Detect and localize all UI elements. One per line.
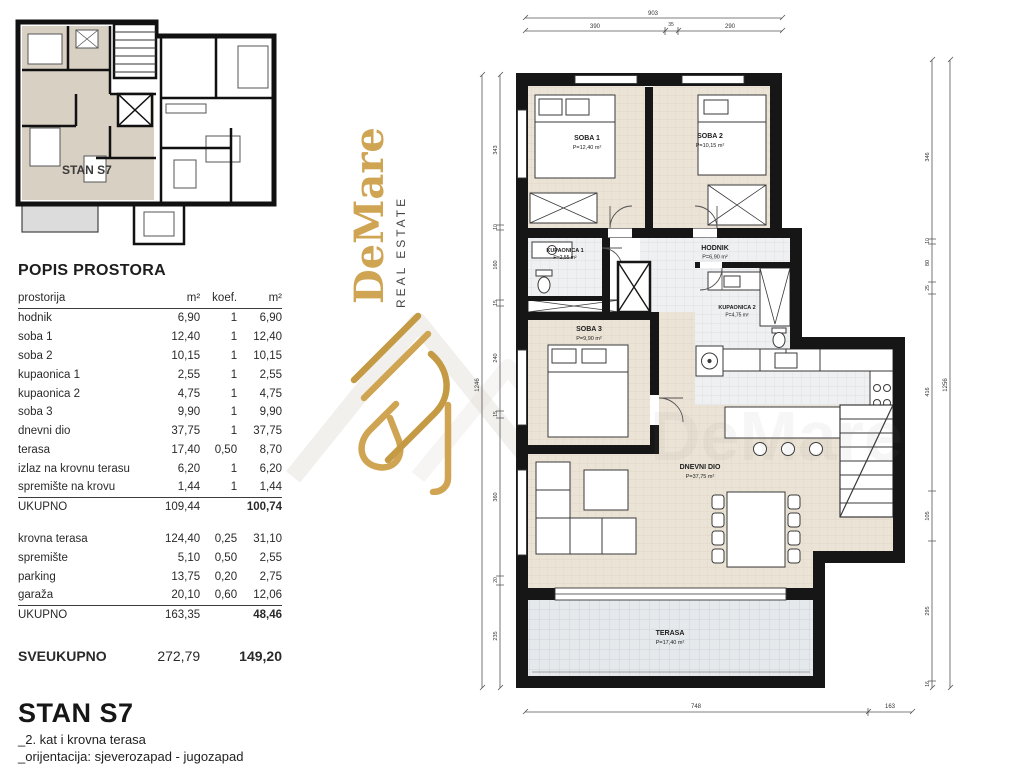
- col-header-m2net: m²: [237, 290, 282, 309]
- label-hodnik: HODNIK: [701, 245, 729, 252]
- unit-subtitle-floor: _2. kat i krovna terasa: [18, 732, 243, 747]
- unit-title-block: STAN S7 _2. kat i krovna terasa _orijent…: [18, 698, 243, 764]
- dim-left-5: 15: [493, 411, 499, 417]
- table-row: izlaz na krovnu terasu6,2016,20: [18, 459, 282, 478]
- subtotal-row: UKUPNO109,44100,74: [18, 497, 282, 516]
- area-soba2: P=10,15 m²: [696, 143, 725, 149]
- dim-bottom-2: 163: [885, 704, 896, 710]
- spacer-row: [18, 517, 282, 530]
- window-left-2: [518, 350, 527, 425]
- label-soba2: SOBA 2: [697, 133, 723, 140]
- table-header-row: prostorija m² koef. m²: [18, 290, 282, 309]
- col-header-m2: m²: [142, 290, 200, 309]
- main-floor-plan: DeMare SOBA 1 P=12,40 m² SOBA 2 P=10,15 …: [460, 0, 1024, 768]
- dim-right-4: 416: [925, 387, 931, 396]
- dim-left-0: 343: [493, 145, 499, 154]
- overview-unit-label: STAN S7: [62, 163, 112, 177]
- dim-right-0: 346: [925, 152, 931, 161]
- dim-left-7: 20: [493, 577, 499, 583]
- window-left-1: [518, 110, 527, 178]
- dim-left-4: 240: [493, 353, 499, 362]
- label-soba3: SOBA 3: [576, 326, 602, 333]
- dim-left-3: 15: [493, 300, 499, 306]
- table-row: spremište na krovu1,4411,44: [18, 478, 282, 497]
- dim-right-total: 1256: [943, 378, 949, 392]
- overview-stair-core: [114, 24, 156, 126]
- dim-left-2: 160: [493, 260, 499, 269]
- table-row: parking13,750,202,75: [18, 567, 282, 586]
- dim-right-2: 80: [925, 260, 931, 266]
- table-row: soba 39,9019,90: [18, 403, 282, 422]
- table-row: hodnik6,9016,90: [18, 309, 282, 328]
- dim-top-1: 390: [590, 24, 601, 30]
- window-soba1: [575, 76, 637, 84]
- dim-right-1: 10: [925, 238, 931, 244]
- area-soba1: P=12,40 m²: [573, 145, 602, 151]
- dim-right-5: 105: [925, 511, 931, 520]
- dim-left-total: 1246: [475, 378, 481, 392]
- col-header-room: prostorija: [18, 290, 142, 309]
- table-row: terasa17,400,508,70: [18, 440, 282, 459]
- brand-tagline: REAL ESTATE: [394, 158, 408, 308]
- label-terasa: TERASA: [656, 630, 685, 637]
- unit-subtitle-orientation: _orijentacija: sjeverozapad - jugozapad: [18, 749, 243, 764]
- table-title: POPIS PROSTORA: [18, 262, 282, 280]
- kitchen-counter: [723, 349, 893, 371]
- area-soba3: P=9,90 m²: [576, 336, 602, 342]
- unit-title: STAN S7: [18, 698, 243, 729]
- coffee-table: [584, 470, 628, 510]
- label-kupaonica1: KUPAONICA 1: [546, 248, 583, 254]
- dim-left-8: 235: [493, 631, 499, 640]
- door-gap-soba1: [608, 229, 632, 238]
- table-row: spremište5,100,502,55: [18, 548, 282, 567]
- dim-left-1: 10: [493, 224, 499, 230]
- dim-right-3: 25: [925, 285, 931, 291]
- label-soba1: SOBA 1: [574, 135, 600, 142]
- spacer-row: [18, 625, 282, 644]
- table-row: soba 210,15110,15: [18, 347, 282, 366]
- label-dnevni: DNEVNI DIO: [680, 464, 721, 471]
- brand-name: DeMare: [350, 154, 390, 304]
- label-kupaonica2: KUPAONICA 2: [718, 305, 755, 311]
- wardrobe-soba1: [530, 193, 597, 223]
- floor-terasa: [528, 600, 813, 676]
- terrace-glass-door: [555, 588, 786, 600]
- shower: [760, 268, 790, 326]
- dim-top-total: 903: [648, 11, 659, 17]
- area-table: prostorija m² koef. m² hodnik6,9016,90so…: [18, 290, 282, 667]
- col-header-koef: koef.: [200, 290, 237, 309]
- table-row: soba 112,40112,40: [18, 328, 282, 347]
- grand-total-row: SVEUKUPNO272,79149,20: [18, 644, 282, 667]
- dim-right-7: 16: [925, 681, 931, 687]
- area-kupaonica2: P=4,75 m²: [725, 313, 749, 319]
- window-left-3: [518, 470, 527, 555]
- table-row: kupaonica 12,5512,55: [18, 365, 282, 384]
- area-dnevni: P=37,75 m²: [686, 474, 715, 480]
- area-terasa: P=17,40 m²: [656, 640, 685, 646]
- dim-left-6: 360: [493, 492, 499, 501]
- overview-terrace-strips: [22, 204, 184, 244]
- door-gap-kupa2: [700, 262, 722, 268]
- dim-right-6: 295: [925, 606, 931, 615]
- brand-logo: DeMare REAL ESTATE: [338, 148, 460, 493]
- table-row: krovna terasa124,400,2531,10: [18, 530, 282, 549]
- area-kupaonica1: P=2,55 m²: [553, 255, 577, 261]
- area-hodnik: P=6,90 m²: [702, 255, 728, 261]
- door-gap-soba2: [693, 229, 717, 238]
- washing-machine-icon: [696, 346, 723, 376]
- table-row: garaža20,100,6012,06: [18, 586, 282, 605]
- elevator-shaft: [618, 262, 650, 312]
- dim-top-2: 35: [668, 22, 674, 28]
- table-row: kupaonica 24,7514,75: [18, 384, 282, 403]
- dim-top-3: 290: [725, 24, 736, 30]
- window-soba2: [682, 76, 744, 84]
- sofa: [536, 462, 636, 554]
- overview-floor-plan: STAN S7: [6, 8, 288, 252]
- bed-soba3: [548, 345, 628, 437]
- table-row: dnevni dio37,75137,75: [18, 422, 282, 441]
- brand-logomark-icon: [338, 310, 460, 495]
- subtotal-row: UKUPNO163,3548,46: [18, 605, 282, 624]
- overview-wardrobe-icon: [76, 30, 98, 48]
- area-table-panel: POPIS PROSTORA prostorija m² koef. m² ho…: [18, 262, 282, 667]
- dim-bottom-1: 748: [691, 704, 702, 710]
